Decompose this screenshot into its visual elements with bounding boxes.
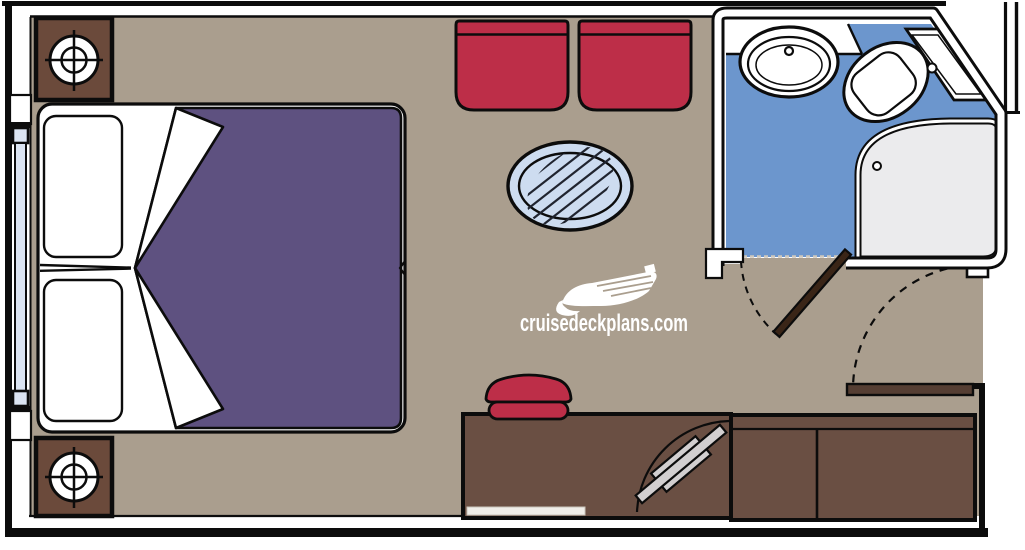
armchair-right [579, 21, 691, 110]
pillow-bottom [44, 280, 122, 421]
cabin-floorplan: cruisedeckplans.com [0, 0, 1025, 550]
pillow-top [44, 116, 122, 257]
cabinets [731, 415, 975, 520]
top-wall [2, 1, 946, 6]
watermark-text: cruisedeckplans.com [520, 310, 688, 337]
bottom-wall [5, 528, 988, 537]
entry-door-leaf [847, 384, 973, 395]
left-wall [5, 1, 12, 537]
cabin-floorplan-page: cruisedeckplans.com [0, 0, 1025, 550]
bedside-table-top [36, 18, 112, 100]
vanity-stool [486, 375, 571, 419]
armchair-left [456, 21, 568, 110]
twin-beds [38, 104, 405, 432]
shower-drain-icon [873, 162, 881, 170]
desk-drawer-strip [467, 507, 585, 515]
sink-icon [740, 27, 838, 97]
desk-with-tv [463, 414, 731, 518]
bathroom [706, 13, 1001, 278]
bedside-table-bottom [36, 438, 112, 516]
shower [858, 121, 999, 259]
